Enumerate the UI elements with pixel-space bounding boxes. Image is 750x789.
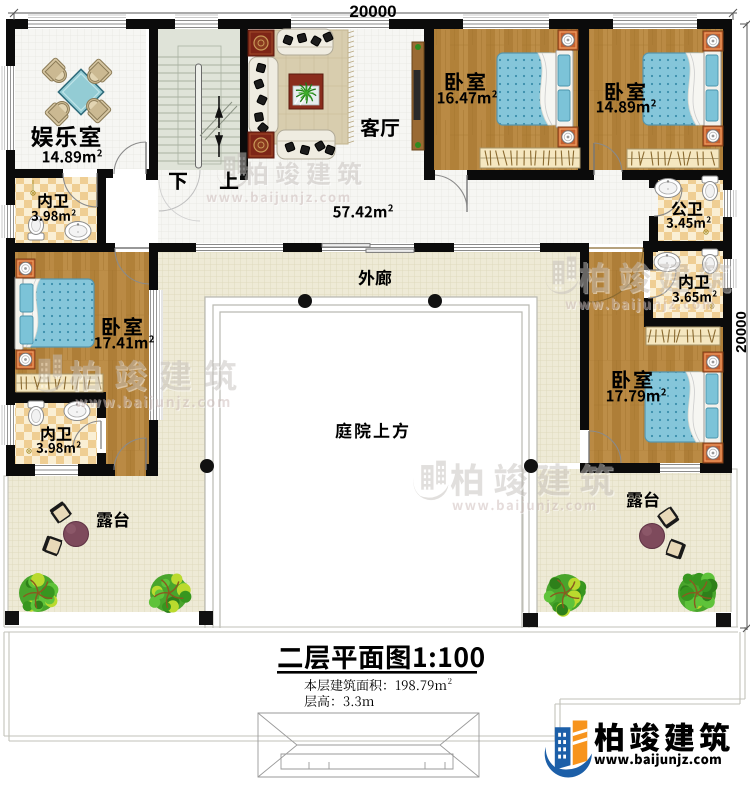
svg-text:20000: 20000	[349, 2, 396, 21]
svg-text:20000: 20000	[733, 311, 750, 353]
